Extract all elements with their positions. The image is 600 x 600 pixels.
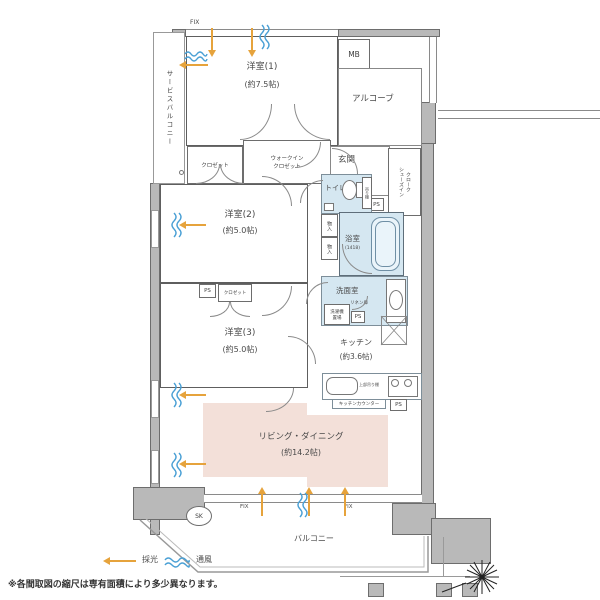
window-gap-bedroom3 (151, 380, 159, 418)
fix-label-top: FIX (190, 19, 199, 27)
toilet-shelf-label: 吊り棚 (364, 187, 370, 199)
meter-box-label: MB (348, 50, 360, 59)
daylight-arrow-icon-b3 (182, 394, 206, 396)
ventilation-icon-sb (184, 50, 208, 62)
sic-label-1: シューズイン (398, 167, 405, 197)
toilet-bowl-icon (342, 180, 357, 200)
balcony-outline (130, 500, 440, 580)
kitchen-sink-icon (326, 377, 358, 395)
ps-label-1: PS (373, 202, 380, 208)
slop-sink-label: SK (195, 513, 203, 520)
pipe-space-kitchen: PS (390, 399, 407, 411)
service-balcony-drain-icon (179, 170, 184, 175)
daylight-arrow-icon-top2 (251, 28, 253, 54)
toilet-shelf: 吊り棚 (362, 177, 372, 209)
kitchen-counter-label: キッチンカウンター (339, 401, 380, 407)
bathtub-inner-icon (375, 221, 396, 267)
wall-neighbor-line (438, 110, 600, 119)
window-gap-bedroom2 (151, 210, 159, 248)
bedroom2-label: 洋室(2) (170, 210, 310, 222)
wall-right-outer (421, 142, 434, 520)
living-dining-label: リビング・ダイニング (186, 432, 416, 443)
legend-ventilation-label: 通風 (196, 555, 212, 565)
alcove (338, 68, 422, 146)
pipe-space-bedroom3: PS (199, 284, 216, 298)
monoire-label-1: 物入 (326, 221, 333, 231)
closet-3-label: クロゼット (224, 290, 247, 296)
washroom-door-arc (306, 282, 328, 304)
north-star-icon (440, 552, 500, 600)
living-dining-size: (約14.2帖) (186, 448, 416, 458)
legend-daylight-label: 採光 (142, 555, 158, 565)
kitchen-counter-tab: キッチンカウンター (332, 399, 386, 409)
ventilation-icon-top (258, 24, 270, 50)
bathroom-label: 浴室 (345, 234, 360, 244)
closet-3: クロゼット (218, 284, 252, 302)
meter-box: MB (338, 39, 370, 69)
service-balcony: サービスバルコニー (153, 32, 185, 184)
sic-label-2: クローク (405, 172, 412, 192)
stove-burner-icon-1 (391, 379, 399, 387)
slop-sink: SK (186, 506, 212, 526)
daylight-arrow-icon-ld (182, 463, 206, 465)
legend-daylight-arrow-icon (106, 560, 136, 562)
bedroom1-label: 洋室(1) (186, 62, 338, 74)
service-balcony-label: サービスバルコニー (164, 70, 174, 147)
ps-label-4: PS (395, 402, 402, 408)
scale-note: ※各間取図の縮尺は専有面積により多少異なります。 (8, 580, 223, 592)
wall-top-strip (338, 29, 440, 37)
bedroom2-size: (約5.0帖) (170, 226, 310, 236)
wall-alcove-right (429, 37, 437, 103)
legend-ventilation-icon (164, 556, 190, 568)
balcony-label: バルコニー (294, 534, 334, 544)
toilet-basin-icon (324, 203, 334, 211)
daylight-arrow-icon-top1 (211, 28, 213, 54)
bedroom1-size: (約7.5帖) (186, 80, 338, 90)
shoe-in-closet: シューズイン クローク (388, 148, 421, 216)
window-gap-living (151, 450, 159, 484)
refrigerator-space-icon (381, 316, 407, 345)
storage-monoire-1: 物入 (321, 214, 338, 237)
kitchen-size: (約3.6帖) (310, 352, 402, 362)
monoire-label-2: 物入 (326, 244, 333, 254)
daylight-arrow-icon-b2 (182, 224, 206, 226)
ps-label-2: PS (355, 314, 362, 320)
upper-shelf-label: 上部吊り棚 (359, 382, 379, 387)
ps-label-3: PS (204, 288, 211, 294)
planter-block-1 (368, 583, 384, 597)
laundry-label-2: 置場 (333, 315, 342, 321)
floor-plan: サービスバルコニー FIX 洋室(1) (約7.5帖) MB アルコーブ クロゼ… (0, 0, 600, 600)
storage-monoire-2: 物入 (321, 237, 338, 260)
laundry-space: 洗濯機 置場 (324, 304, 350, 325)
alcove-label: アルコーブ (352, 94, 394, 105)
vanity-sink-icon (389, 290, 403, 310)
washroom-label: 洗面室 (336, 286, 359, 296)
daylight-arrow-icon-sb (182, 64, 208, 66)
pipe-space-washroom: PS (351, 311, 365, 323)
stove-burner-icon-2 (404, 379, 412, 387)
